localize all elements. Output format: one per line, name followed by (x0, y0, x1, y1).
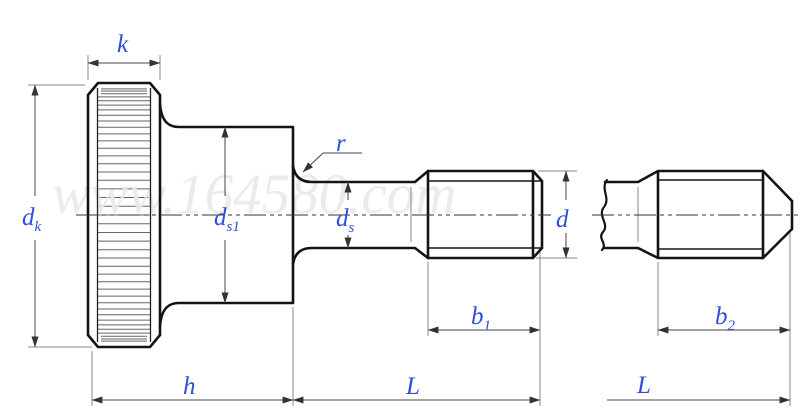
label-d: d (556, 206, 569, 233)
label-b2: b2 (715, 303, 736, 334)
label-L-front: L (405, 373, 420, 400)
technical-drawing-canvas: www.164580.com (0, 0, 800, 420)
thumb-screw-drawing: www.164580.com (0, 0, 800, 420)
label-b1: b1 (471, 303, 491, 334)
label-k: k (117, 31, 129, 58)
label-dk: dk (22, 204, 42, 235)
dimension-lines (35, 63, 790, 400)
watermark-text: www.164580.com (52, 163, 456, 226)
extension-lines (28, 55, 790, 406)
label-h: h (183, 373, 196, 400)
label-L-end: L (636, 372, 651, 399)
label-r: r (336, 130, 346, 157)
